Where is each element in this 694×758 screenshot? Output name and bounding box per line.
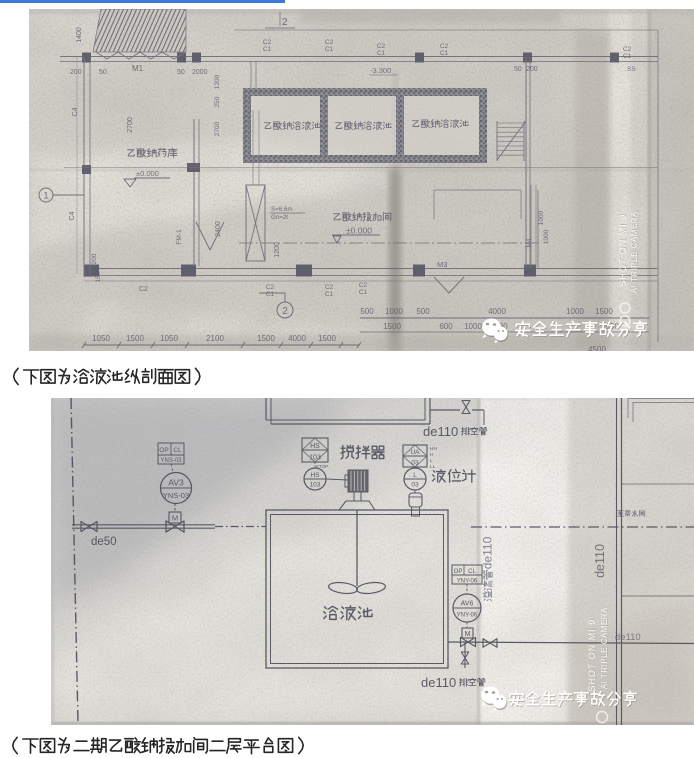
svg-text:de110: de110 [615, 632, 641, 643]
svg-text:1000: 1000 [385, 307, 403, 316]
svg-text:1500: 1500 [383, 322, 401, 331]
svg-text:1000: 1000 [538, 210, 545, 225]
svg-text:FM-1: FM-1 [176, 229, 183, 245]
svg-text:1200: 1200 [214, 74, 221, 89]
svg-text:AI TRIPLE CAMERA: AI TRIPLE CAMERA [630, 211, 639, 293]
svg-text:±0.000: ±0.000 [346, 226, 372, 236]
svg-text:M: M [172, 514, 178, 523]
svg-text:C2: C2 [623, 46, 632, 53]
svg-text:C1: C1 [325, 291, 334, 298]
svg-text:L: L [413, 472, 417, 479]
svg-text:C2: C2 [263, 39, 272, 46]
svg-text:2700: 2700 [127, 117, 134, 133]
svg-text:103: 103 [310, 482, 321, 489]
svg-text:HS: HS [310, 472, 320, 479]
svg-text:50: 50 [177, 69, 185, 76]
svg-text:SHOT ON MI 9: SHOT ON MI 9 [618, 214, 628, 287]
svg-text:C1: C1 [263, 46, 272, 53]
svg-text:2: 2 [282, 17, 288, 28]
svg-text:250: 250 [214, 96, 221, 107]
svg-text:YNY-06: YNY-06 [457, 613, 478, 619]
svg-text:500: 500 [360, 307, 374, 316]
svg-text:C1: C1 [440, 50, 449, 57]
svg-text:M3: M3 [437, 260, 447, 269]
svg-text:2000: 2000 [192, 69, 208, 76]
svg-text:Gn=2t: Gn=2t [271, 214, 288, 221]
svg-text:C4: C4 [72, 107, 79, 116]
svg-text:200: 200 [526, 66, 538, 73]
svg-text:LL: LL [430, 464, 436, 470]
svg-text:M4: M4 [526, 238, 533, 247]
svg-text:C1: C1 [623, 53, 632, 60]
svg-text:±0.000: ±0.000 [136, 169, 159, 178]
svg-text:C2: C2 [359, 282, 368, 289]
svg-text:C2: C2 [139, 286, 148, 293]
svg-text:CL: CL [173, 447, 182, 454]
svg-text:OP: OP [159, 447, 168, 454]
svg-text:L: L [430, 458, 433, 464]
svg-text:S=6.6m: S=6.6m [271, 206, 293, 213]
svg-text:C2: C2 [266, 284, 275, 291]
svg-text:1050: 1050 [160, 334, 178, 343]
svg-text:03: 03 [411, 482, 419, 489]
svg-text:C1: C1 [266, 291, 275, 298]
svg-text:2400: 2400 [215, 221, 222, 237]
svg-text:C2: C2 [325, 284, 334, 291]
svg-text:de110: de110 [593, 544, 607, 578]
svg-text:AV6: AV6 [461, 601, 474, 608]
svg-text:1000: 1000 [543, 229, 550, 244]
svg-text:200: 200 [70, 69, 82, 76]
svg-text:1200: 1200 [274, 242, 281, 258]
svg-text:50: 50 [514, 66, 522, 73]
svg-text:1500: 1500 [318, 334, 336, 343]
svg-text:2: 2 [282, 306, 288, 317]
svg-text:1500: 1500 [595, 307, 613, 316]
svg-text:H: H [430, 452, 434, 458]
svg-text:600: 600 [439, 322, 453, 331]
svg-text:HH: HH [430, 446, 437, 452]
svg-text:1050: 1050 [92, 334, 110, 343]
svg-text:SHOT ON MI 9: SHOT ON MI 9 [587, 619, 597, 692]
svg-text:03: 03 [411, 460, 419, 467]
svg-text:C4: C4 [69, 211, 76, 220]
svg-text:OP: OP [454, 569, 463, 575]
svg-text:4000: 4000 [288, 334, 306, 343]
svg-text:de110: de110 [481, 536, 495, 569]
svg-text:2700: 2700 [214, 121, 221, 136]
svg-text:-3.300: -3.300 [370, 66, 391, 75]
svg-text:150: 150 [95, 271, 102, 282]
svg-text:4000: 4000 [488, 307, 506, 316]
svg-text:C2: C2 [377, 43, 386, 50]
svg-text:1500: 1500 [126, 334, 144, 343]
svg-text:AI TRIPLE CAMERA: AI TRIPLE CAMERA [600, 607, 609, 689]
svg-text:1400: 1400 [76, 27, 83, 43]
svg-text:500: 500 [416, 307, 430, 316]
svg-text:M: M [465, 631, 471, 638]
svg-text:UA: UA [410, 449, 420, 456]
svg-text:M1: M1 [132, 64, 144, 73]
svg-text:AV3: AV3 [168, 478, 184, 488]
svg-text:C2: C2 [440, 43, 449, 50]
svg-text:C1: C1 [359, 289, 368, 296]
svg-text:HS: HS [310, 443, 320, 450]
svg-text:C2: C2 [325, 39, 334, 46]
svg-text:CL: CL [468, 569, 476, 575]
svg-text:50: 50 [99, 69, 107, 76]
svg-text:C1: C1 [377, 50, 386, 57]
svg-text:YNY-06: YNY-06 [457, 579, 478, 585]
svg-text:2100: 2100 [206, 334, 224, 343]
svg-text:1500: 1500 [257, 334, 275, 343]
svg-text:de110: de110 [421, 675, 456, 690]
svg-text:1000: 1000 [566, 307, 584, 316]
svg-text:YNS-03: YNS-03 [163, 491, 189, 500]
svg-text:1000: 1000 [464, 322, 482, 331]
svg-text:de110: de110 [423, 424, 458, 439]
svg-text:de50: de50 [91, 536, 117, 548]
svg-text:1: 1 [43, 191, 48, 201]
svg-text:200: 200 [91, 253, 98, 264]
svg-text:SS: SS [627, 66, 636, 73]
svg-text:103: 103 [309, 455, 321, 462]
svg-text:C1: C1 [325, 46, 334, 53]
svg-text:YNS-03: YNS-03 [160, 458, 182, 464]
